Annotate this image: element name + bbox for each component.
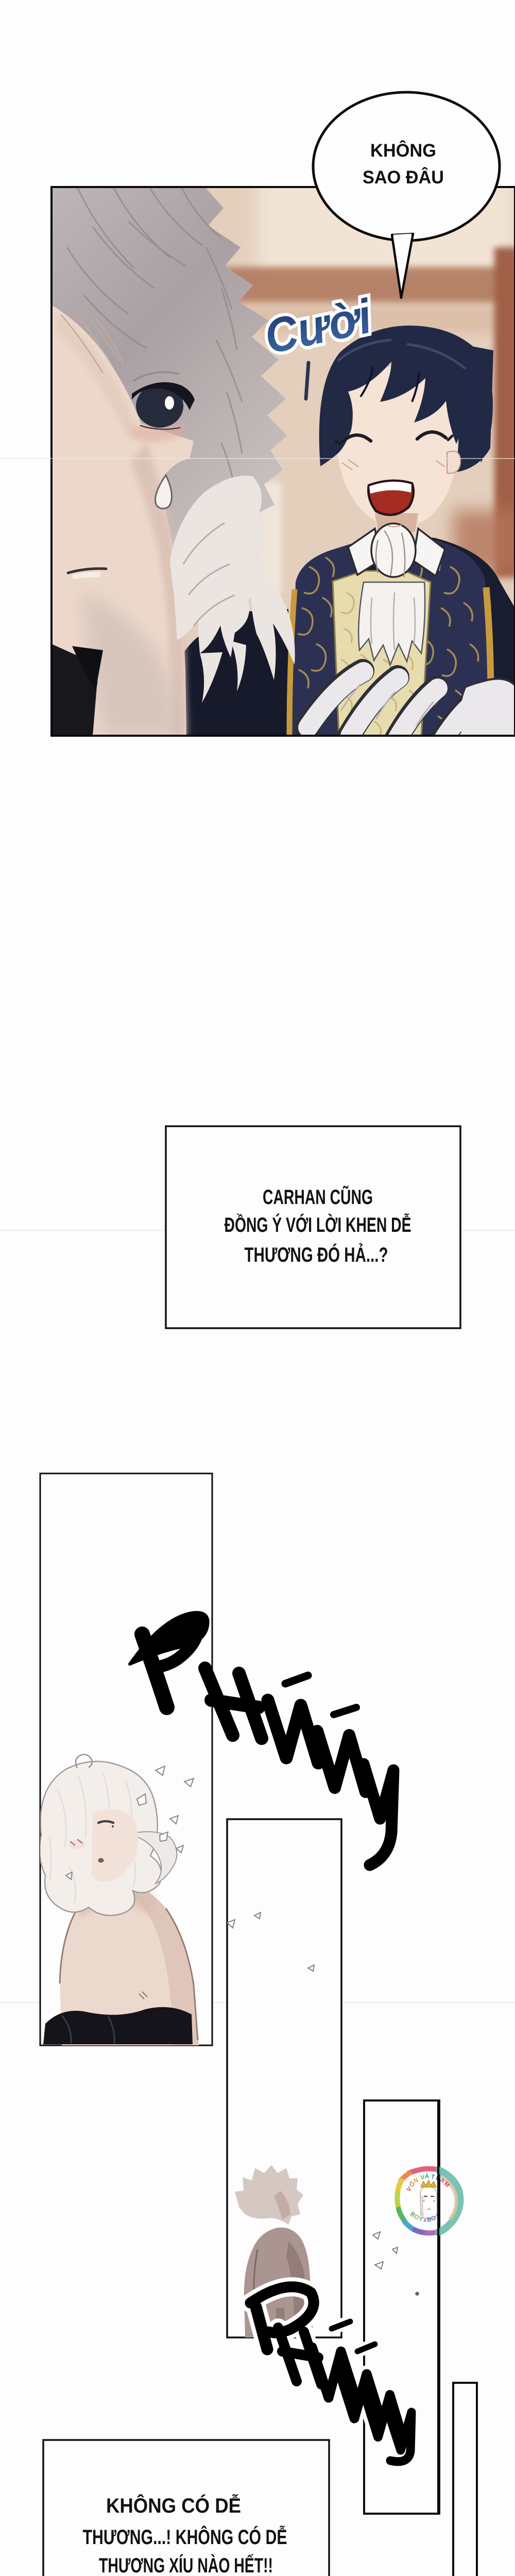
svg-text:KHÔNG: KHÔNG [370,140,436,161]
svg-text:THƯƠNG ĐÓ HẢ...?: THƯƠNG ĐÓ HẢ...? [245,1243,388,1266]
svg-text:ĐỒNG Ý VỚI LỜI KHEN DỄ: ĐỒNG Ý VỚI LỜI KHEN DỄ [225,1213,411,1236]
svg-text:THƯƠNG XÍU NÀO HẾT!!: THƯƠNG XÍU NÀO HẾT!! [99,2553,273,2576]
svg-text:SAO ĐÂU: SAO ĐÂU [363,167,444,188]
svg-text:THƯƠNG...! KHÔNG CÓ DỄ: THƯƠNG...! KHÔNG CÓ DỄ [83,2525,287,2549]
svg-text:CARHAN CŨNG: CARHAN CŨNG [263,1185,373,1209]
svg-text:KHÔNG CÓ DỄ: KHÔNG CÓ DỄ [106,2494,241,2517]
svg-text:À: À [425,2172,430,2180]
